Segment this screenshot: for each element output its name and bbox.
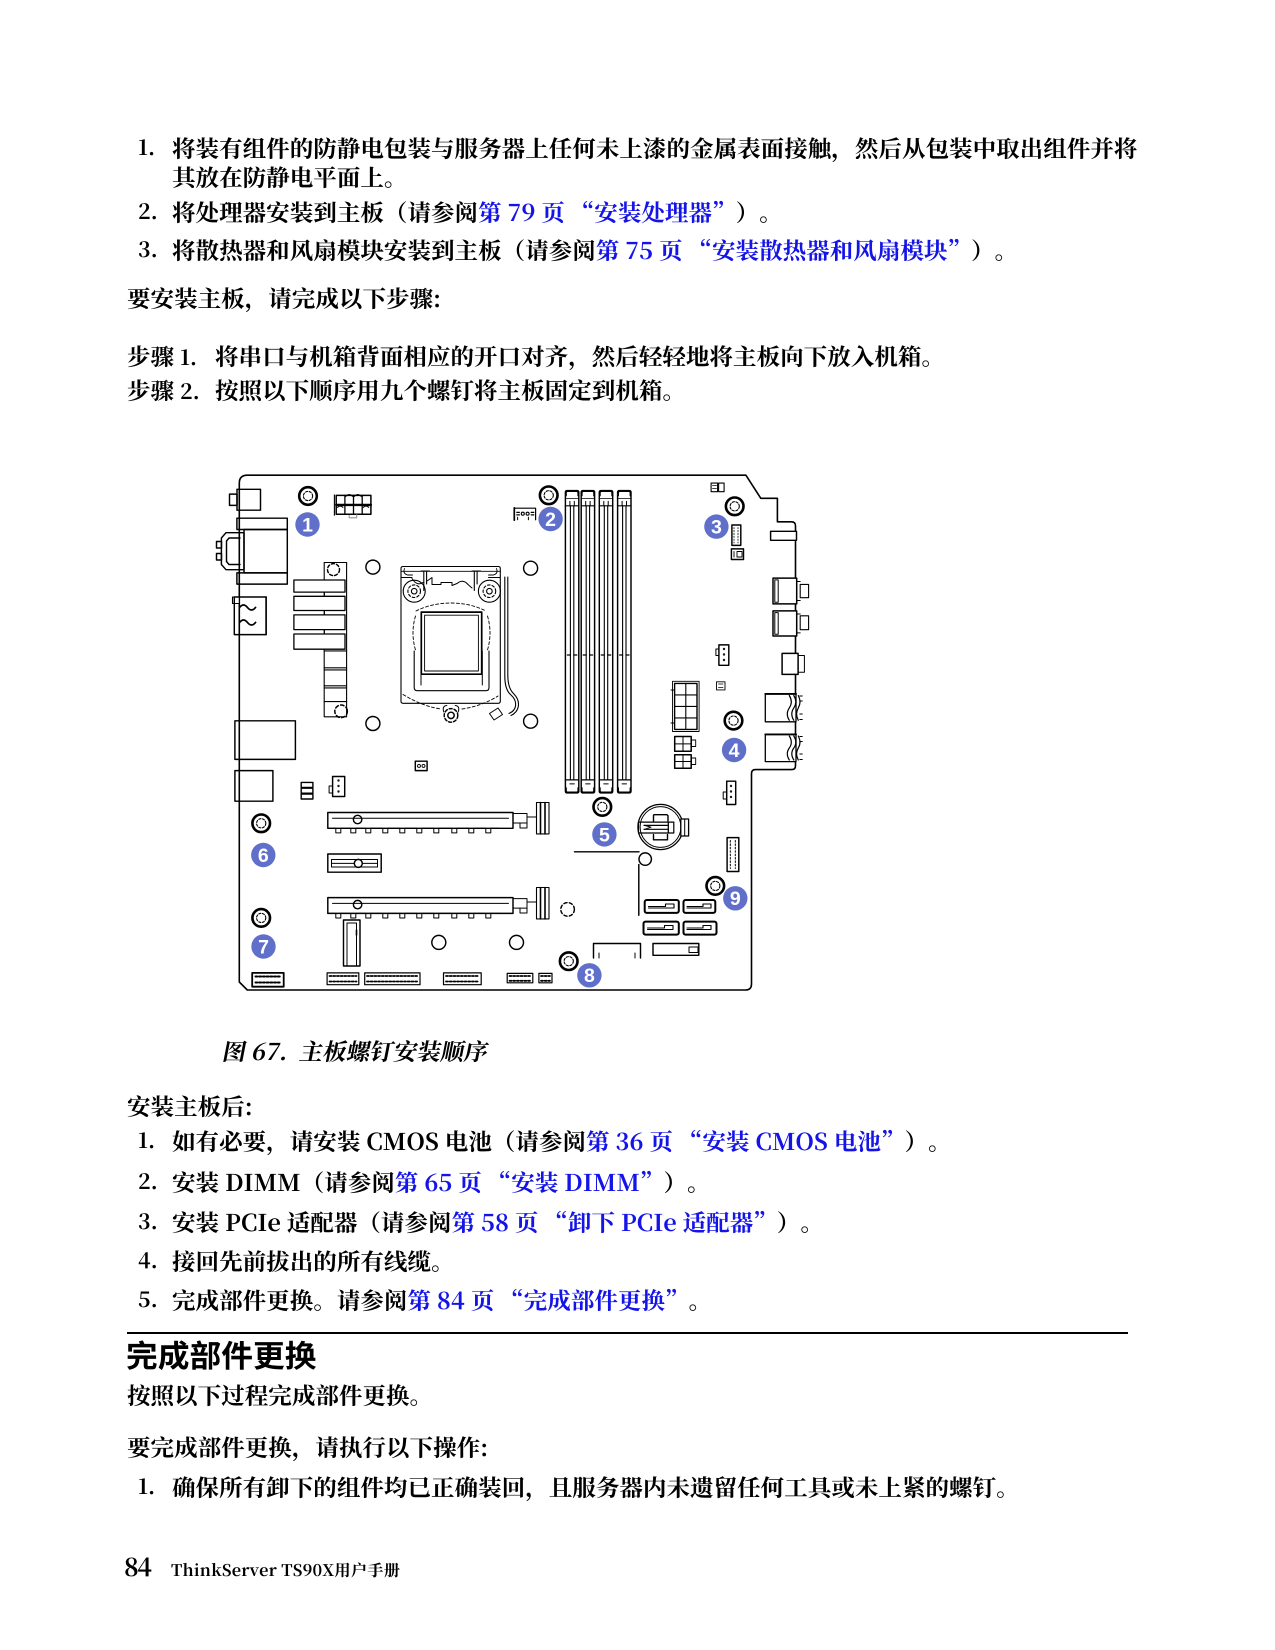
svg-text:2: 2 (545, 509, 556, 531)
svg-text:7: 7 (258, 936, 269, 958)
svg-text:6: 6 (258, 845, 269, 867)
svg-text:3: 3 (711, 517, 722, 539)
svg-text:5: 5 (599, 824, 610, 846)
svg-text:8: 8 (584, 965, 595, 987)
svg-text:4: 4 (729, 740, 740, 762)
svg-text:1: 1 (302, 514, 313, 536)
svg-text:9: 9 (730, 888, 741, 910)
